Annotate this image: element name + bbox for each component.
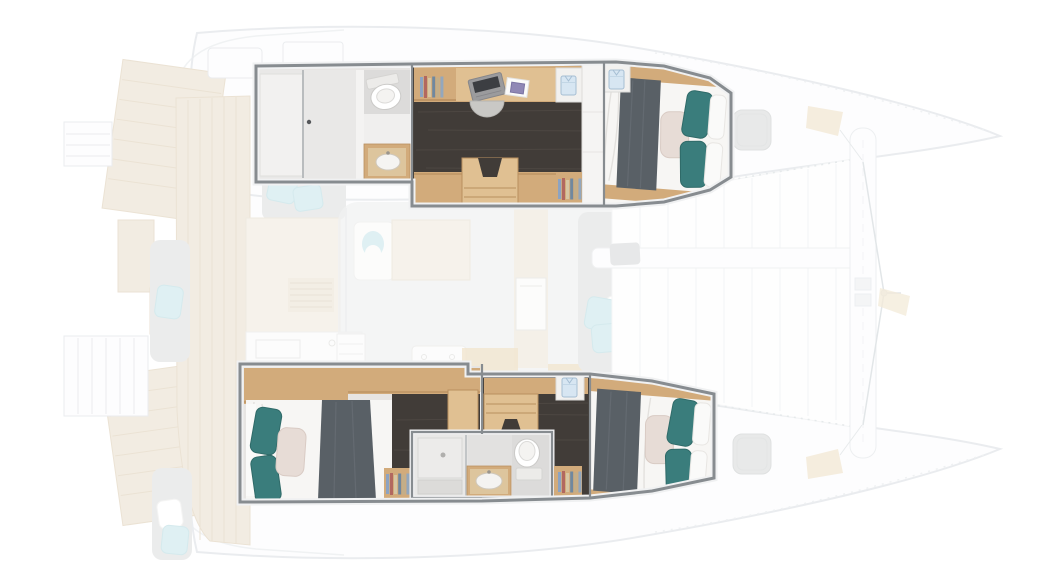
- bed-blanket: [589, 389, 645, 494]
- mast-base-fitting: [609, 242, 640, 266]
- beam-fitting: [855, 278, 871, 290]
- sink-basin: [376, 154, 400, 170]
- white-pillow: [707, 94, 726, 139]
- shower-tray: [418, 438, 462, 478]
- galley-aft-cabinet: [246, 218, 340, 332]
- port-boarding-ladder: [64, 122, 112, 166]
- wood-panel: [448, 390, 478, 434]
- salon-table: [392, 220, 470, 280]
- yacht-floorplan-canvas: [0, 0, 1040, 585]
- bench-pillow-blue: [154, 284, 184, 319]
- head-passage: [364, 114, 410, 144]
- wood-header-deep: [244, 368, 348, 404]
- sink-basin: [476, 473, 502, 489]
- notebook: [505, 78, 529, 98]
- head-wall: [356, 70, 364, 180]
- faucet: [386, 151, 390, 155]
- anchor-roller: [878, 288, 910, 316]
- toilet-bowl-inner: [519, 442, 535, 461]
- white-pillow: [692, 402, 711, 445]
- toilet-tank: [516, 468, 542, 480]
- salon-seat-cushion-hi: [365, 245, 381, 261]
- bath-floor: [468, 435, 512, 465]
- bed-blanket: [318, 400, 376, 500]
- shirt-icon: [562, 378, 577, 397]
- cockpit-pillow-blue: [292, 184, 323, 212]
- bench-pillow-white: [156, 498, 184, 529]
- shower-seat: [418, 480, 462, 494]
- shower-door-panel: [260, 74, 303, 176]
- teal-pillow: [680, 141, 706, 187]
- floorplan-svg: [0, 0, 1040, 585]
- teak-strip: [118, 220, 154, 292]
- wardrobe: [582, 64, 604, 206]
- shower-drain: [441, 453, 446, 458]
- lower-hull-interior: [240, 364, 718, 512]
- shirt-icon: [609, 70, 624, 89]
- shower-door-handle: [307, 120, 311, 124]
- faucet: [487, 470, 491, 474]
- blush-pillow: [275, 427, 306, 477]
- salon-entry-step: [337, 334, 365, 364]
- bench-pillow-blue: [161, 525, 190, 556]
- shirt-icon: [561, 76, 576, 95]
- beam-fitting: [855, 294, 871, 306]
